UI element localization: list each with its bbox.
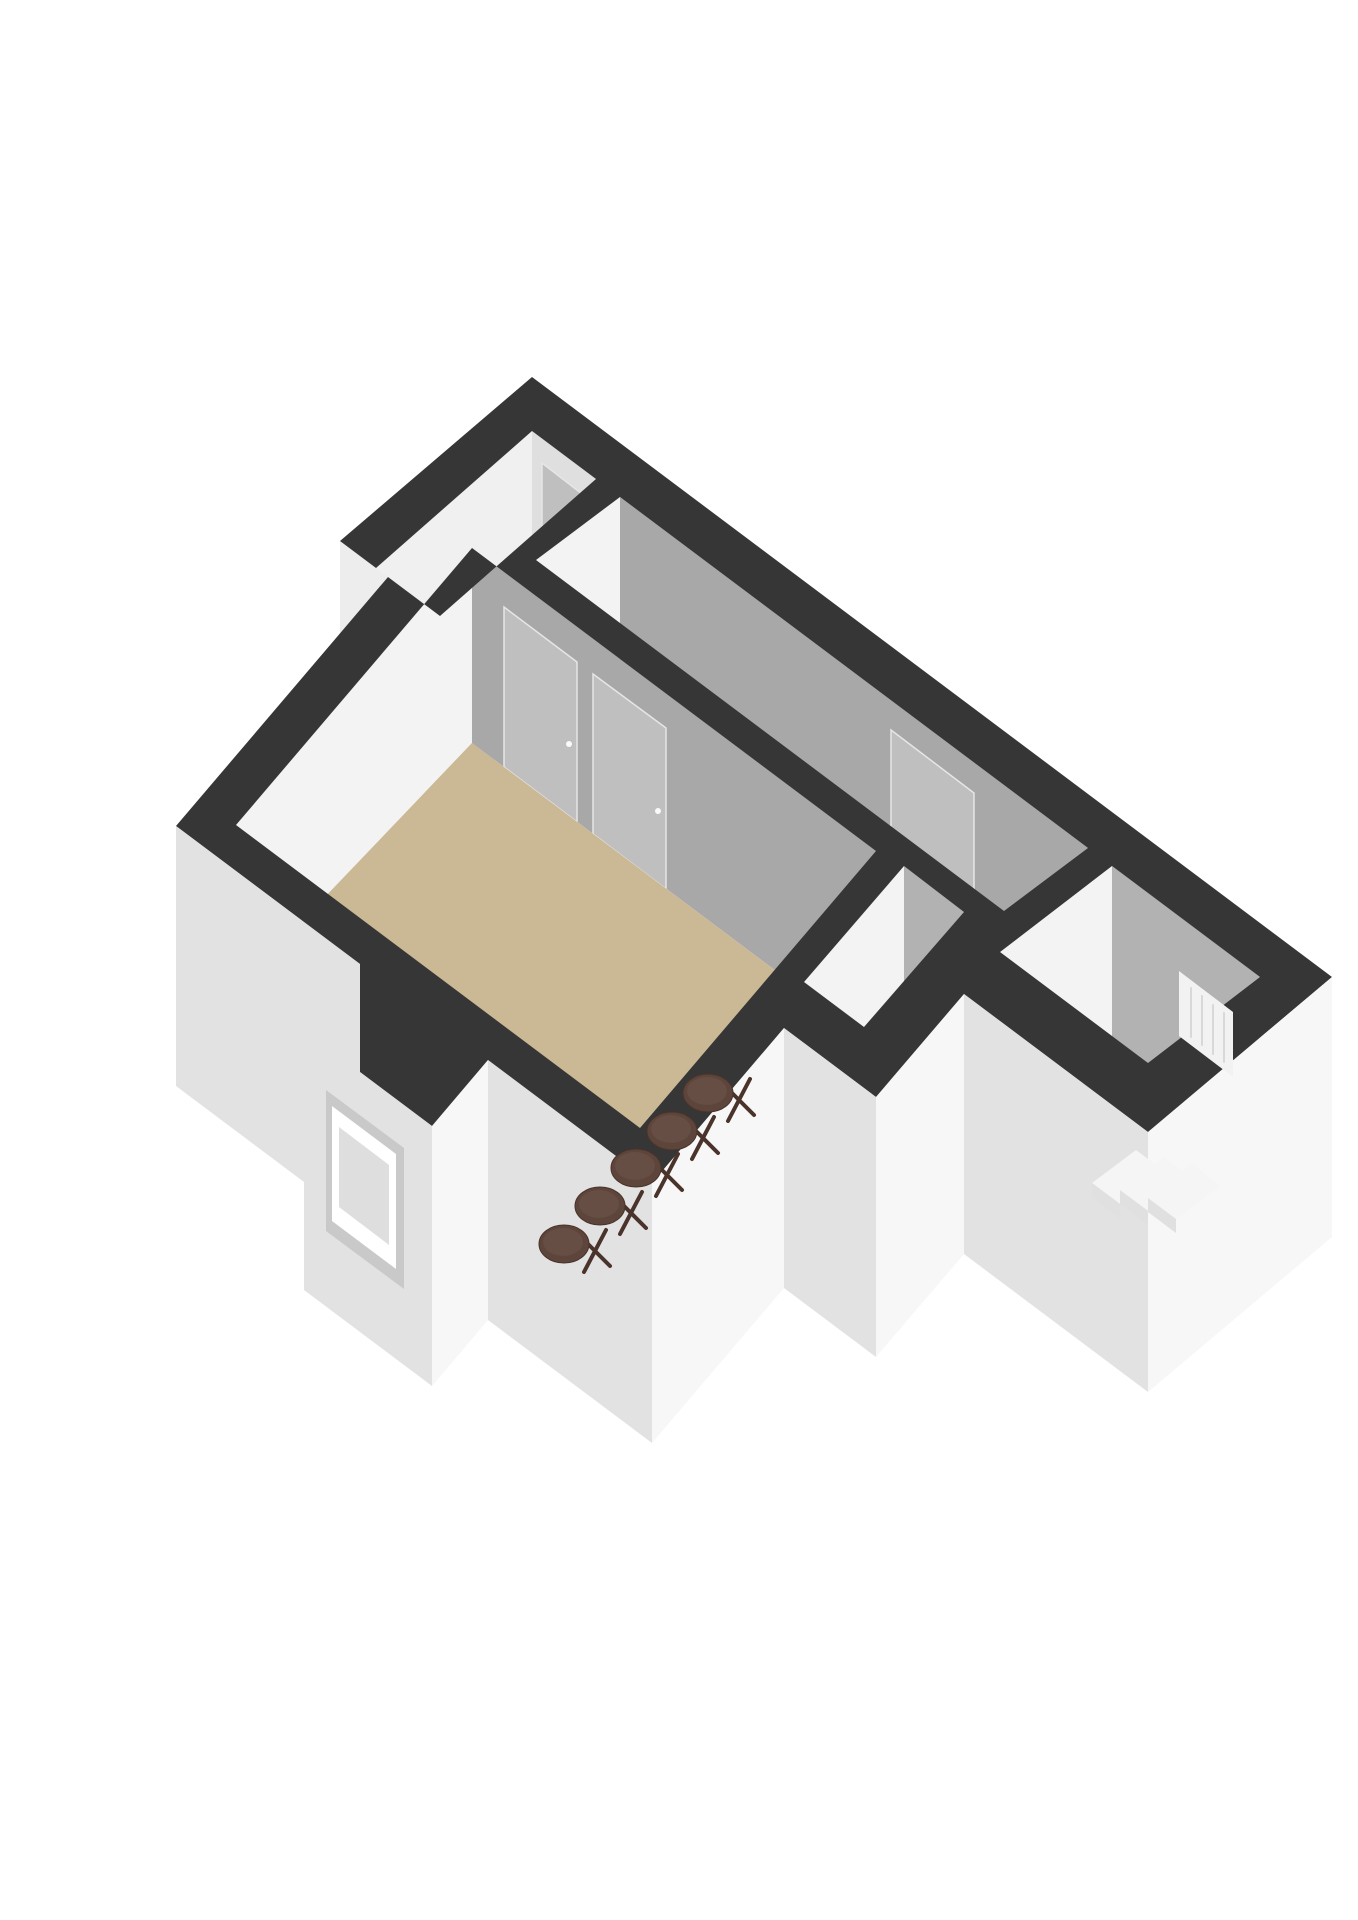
floorplan-svg [0, 0, 1358, 1920]
chair-1-seat-top [687, 1077, 727, 1105]
chair-2-seat-top [651, 1115, 691, 1143]
chair-3-seat-top [615, 1152, 655, 1180]
chair-5-seat-top [543, 1228, 583, 1256]
living-room-door-1-handle [566, 741, 572, 747]
living-room-door-2-handle [655, 808, 661, 814]
chair-4-seat-top [579, 1190, 619, 1218]
floorplan-3d-render [0, 0, 1358, 1920]
